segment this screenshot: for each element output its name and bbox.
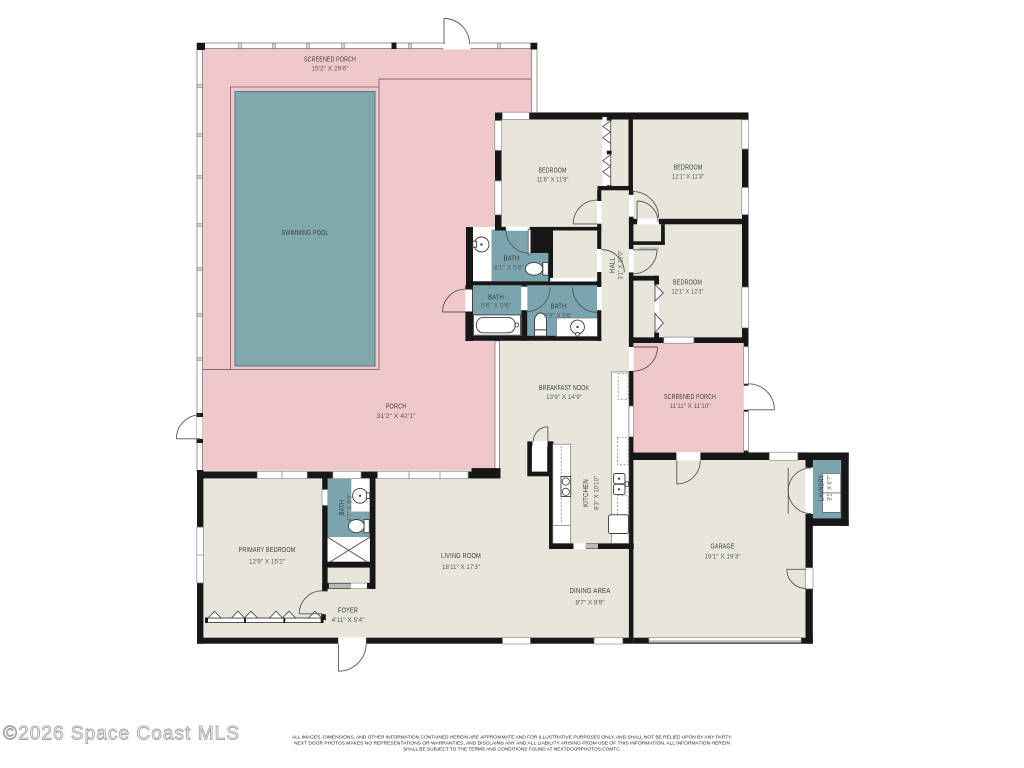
svg-text:BREAKFAST NOOK: BREAKFAST NOOK [539, 385, 589, 392]
svg-text:PRIMARY BEDROOM: PRIMARY BEDROOM [239, 547, 296, 554]
svg-text:3'1" X 6'7": 3'1" X 6'7" [827, 475, 834, 501]
svg-text:SCREENED PORCH: SCREENED PORCH [304, 57, 356, 64]
svg-text:12'1" X 11'3": 12'1" X 11'3" [672, 174, 704, 181]
svg-text:11'6" X 11'9": 11'6" X 11'9" [537, 177, 569, 184]
svg-text:LAUNDRY: LAUNDRY [819, 475, 826, 501]
svg-text:©2026 Space Coast MLS: ©2026 Space Coast MLS [3, 724, 240, 745]
svg-text:SHALL BE SUBJECT TO THE TERMS: SHALL BE SUBJECT TO THE TERMS AND CONDIT… [403, 747, 621, 753]
svg-text:13'9" X 14'9": 13'9" X 14'9" [546, 394, 582, 401]
svg-text:5'6" X 5'6": 5'6" X 5'6" [481, 303, 511, 310]
svg-text:8'3" X 10'10": 8'3" X 10'10" [594, 476, 601, 510]
svg-text:PORCH: PORCH [386, 404, 407, 411]
svg-text:4'7" X 9'3": 4'7" X 9'3" [347, 494, 354, 522]
svg-text:3'1" X 16'0": 3'1" X 16'0" [618, 251, 625, 280]
svg-text:15'2" X 29'6": 15'2" X 29'6" [312, 66, 349, 73]
svg-text:SCREENED PORCH: SCREENED PORCH [664, 394, 716, 401]
svg-text:BEDROOM: BEDROOM [539, 168, 567, 175]
svg-text:12'9" X 15'2": 12'9" X 15'2" [249, 559, 285, 566]
svg-text:BATH: BATH [339, 500, 346, 516]
svg-text:18'11" X 17'3": 18'11" X 17'3" [442, 564, 480, 571]
svg-text:ALL IMAGES, DIMENSIONS, AND OT: ALL IMAGES, DIMENSIONS, AND OTHER INFORM… [292, 735, 732, 741]
svg-text:GARAGE: GARAGE [711, 544, 735, 551]
svg-text:BATH: BATH [504, 256, 520, 263]
svg-text:KITCHEN: KITCHEN [583, 479, 590, 507]
svg-text:11'11" X 11'10": 11'11" X 11'10" [670, 403, 711, 410]
svg-text:BATH: BATH [488, 295, 504, 302]
svg-text:31'2" X 42'1": 31'2" X 42'1" [377, 413, 416, 420]
svg-text:19'1" X 19'3": 19'1" X 19'3" [705, 554, 741, 561]
svg-text:SWIMMING POOL: SWIMMING POOL [282, 230, 329, 237]
svg-text:DINING AREA: DINING AREA [570, 588, 611, 595]
svg-text:8'1" X 5'6": 8'1" X 5'6" [494, 265, 524, 272]
svg-text:HALL: HALL [610, 257, 617, 273]
svg-text:BEDROOM: BEDROOM [673, 280, 702, 287]
svg-text:12'1" X 12'3": 12'1" X 12'3" [672, 289, 704, 296]
svg-text:4'11" X 5'4": 4'11" X 5'4" [332, 617, 365, 624]
svg-text:FOYER: FOYER [338, 608, 358, 615]
svg-text:NEXT DOOR PHOTOS MAKES NO REPR: NEXT DOOR PHOTOS MAKES NO REPRESENTATION… [294, 741, 731, 747]
svg-text:LIVING ROOM: LIVING ROOM [441, 553, 481, 560]
svg-text:BEDROOM: BEDROOM [674, 165, 703, 172]
svg-text:BATH: BATH [551, 304, 567, 311]
svg-text:8'7" X 9'9": 8'7" X 9'9" [576, 600, 605, 607]
svg-text:7'8" X 5'6": 7'8" X 5'6" [545, 313, 573, 320]
